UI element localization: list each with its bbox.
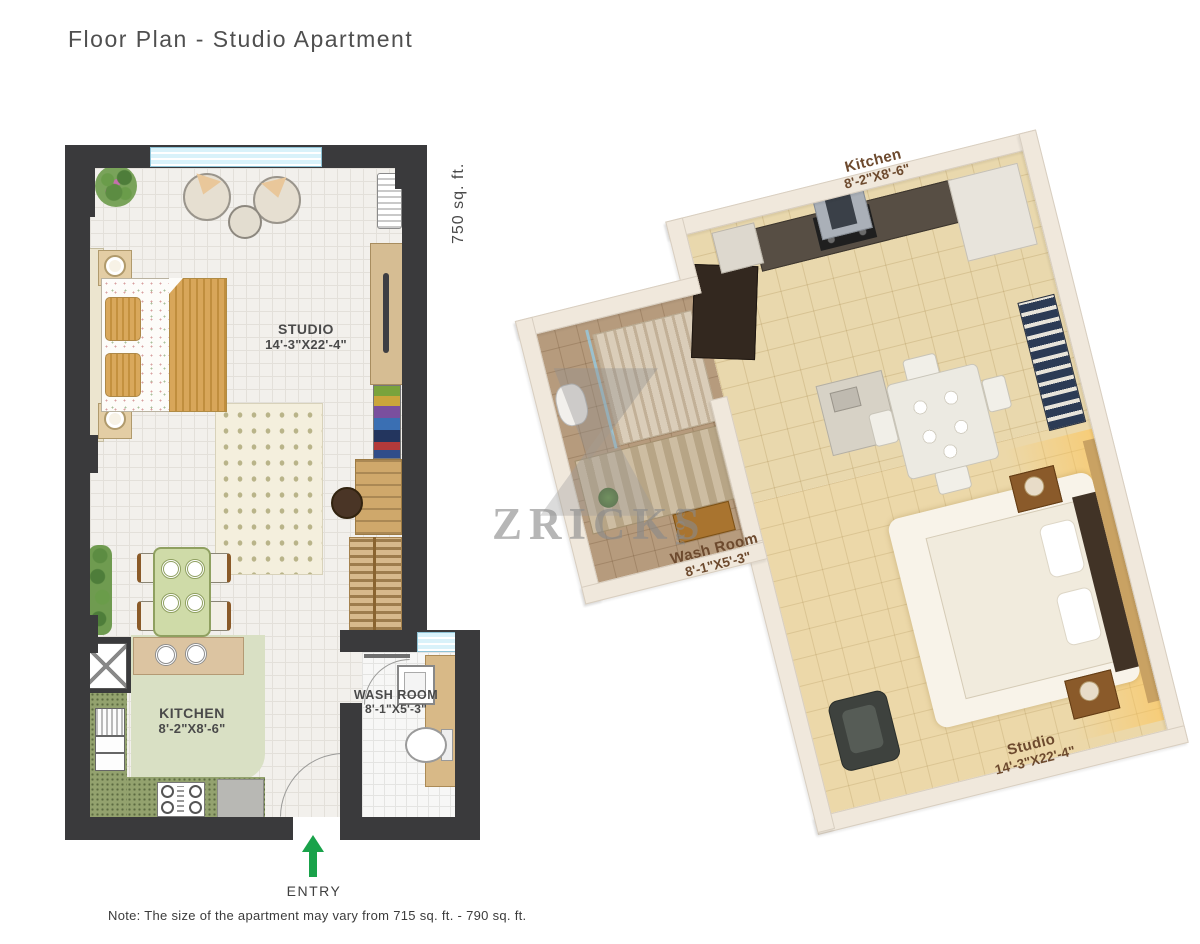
burner — [189, 785, 202, 798]
burner — [161, 785, 174, 798]
wall-right-upper — [402, 145, 427, 652]
page-title: Floor Plan - Studio Apartment — [68, 26, 413, 53]
blanket-fold — [169, 278, 183, 294]
stove-center — [177, 786, 184, 812]
kitchen-dims: 8'-2"X8'-6" — [127, 721, 257, 736]
kitchen-name: KITCHEN — [127, 705, 257, 721]
wall-bottom-right — [340, 817, 480, 840]
kitchen-sink-unit — [95, 708, 125, 736]
washroom-label: WASH ROOM 8'-1"X5'-3" — [335, 688, 457, 716]
plate — [185, 593, 205, 613]
studio-name: STUDIO — [236, 321, 376, 337]
entry-arrow-icon — [302, 835, 324, 852]
entry-arrow-stem — [309, 851, 317, 877]
counter-gray — [217, 779, 264, 818]
wall-bump — [65, 145, 95, 217]
studio-label: STUDIO 14'-3"X22'-4" — [236, 321, 376, 352]
wardrobe-handle — [383, 273, 389, 353]
wall-bottom-left — [65, 817, 293, 840]
corner-plant — [95, 165, 137, 207]
wall-bump — [65, 435, 98, 473]
toilet — [405, 727, 447, 763]
plate — [161, 593, 181, 613]
floor-plan-canvas: Floor Plan - Studio Apartment 750 sq. ft… — [0, 0, 1200, 944]
size-note: Note: The size of the apartment may vary… — [108, 908, 526, 923]
washroom-dims: 8'-1"X5'-3" — [335, 702, 457, 716]
plate — [185, 559, 205, 579]
burner — [189, 801, 202, 814]
studio-dims: 14'-3"X22'-4" — [236, 337, 376, 352]
plate — [161, 559, 181, 579]
watermark-tld: COM — [672, 508, 688, 549]
wall-bump — [65, 615, 98, 653]
kitchen-sink-basin — [95, 753, 125, 771]
nightstand-lamp — [104, 255, 126, 277]
dining-table — [153, 547, 211, 637]
side-table-round — [228, 205, 262, 239]
washroom-door-leaf — [364, 654, 410, 658]
bar-stool — [185, 643, 207, 665]
entry-door-3d — [691, 264, 758, 360]
kitchen-label: KITCHEN 8'-2"X8'-6" — [127, 705, 257, 736]
bed-blanket — [169, 278, 227, 412]
slat-rack-rail — [373, 537, 376, 637]
plan-2d: STUDIO 14'-3"X22'-4" KITCHEN 8'-2"X8'-6"… — [65, 145, 480, 840]
washroom-wall-left — [340, 703, 362, 817]
bookshelf — [373, 385, 401, 459]
pillow — [105, 297, 141, 341]
burner — [161, 801, 174, 814]
washroom-wall-right — [455, 630, 480, 840]
wall-left — [65, 145, 90, 817]
studio-window — [150, 147, 322, 167]
kitchen-sink-basin — [95, 736, 125, 753]
washroom-name: WASH ROOM — [335, 688, 457, 702]
wall-bump — [395, 145, 427, 189]
bar-stool — [155, 644, 177, 666]
zricks-logo-icon — [540, 368, 658, 516]
pillow — [105, 353, 141, 397]
bed-rug — [215, 403, 323, 575]
entry-label: ENTRY — [275, 883, 353, 899]
desk-chair — [331, 487, 363, 519]
